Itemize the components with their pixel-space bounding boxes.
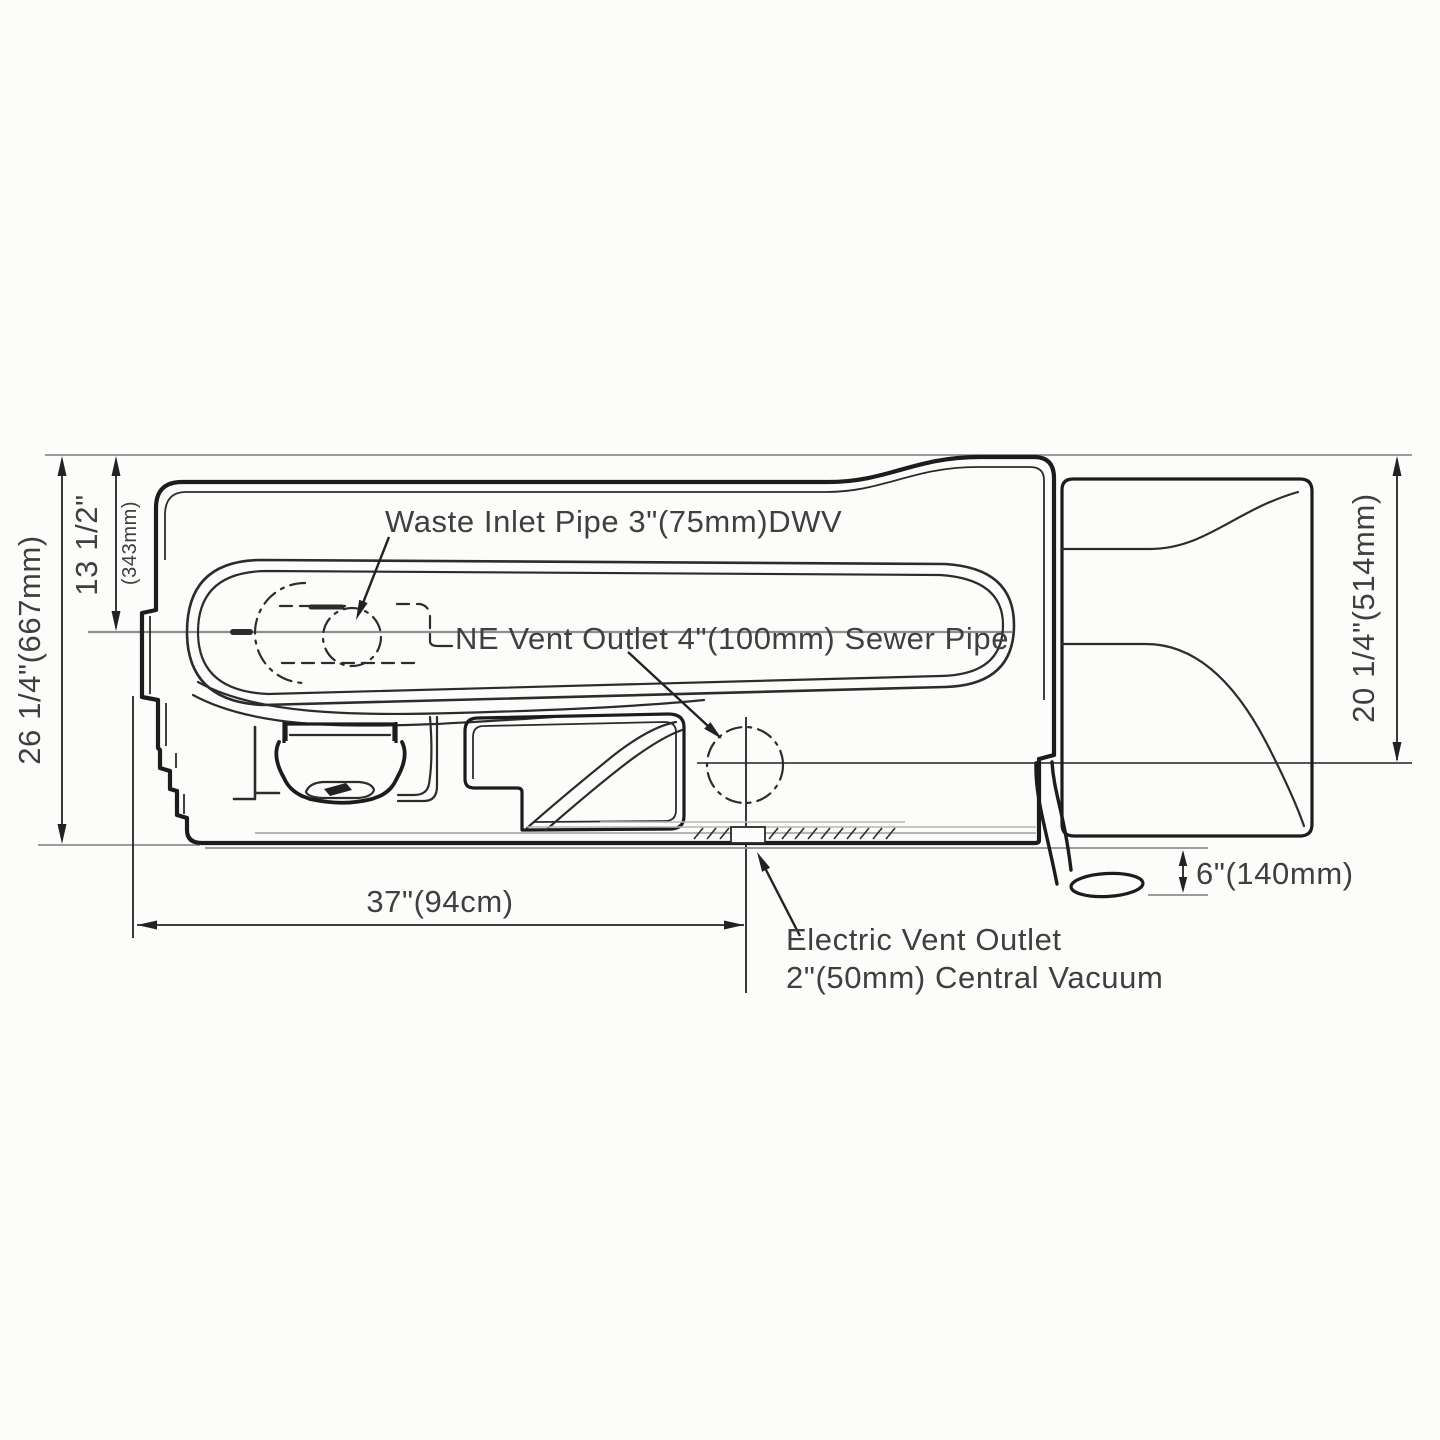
vent-bracket-foot bbox=[430, 634, 452, 646]
width-dimension-label: 37"(94cm) bbox=[366, 884, 513, 919]
electric-vent-label-line2: 2"(50mm) Central Vacuum bbox=[786, 960, 1163, 995]
dimension-hose-drop bbox=[1179, 850, 1187, 893]
waste-inlet-circle bbox=[323, 608, 381, 666]
sump-ramp-1 bbox=[527, 722, 676, 828]
diagram-canvas: Waste Inlet Pipe 3"(75mm)DWV NE Vent Out… bbox=[0, 0, 1440, 1440]
discharge-height-dimension-label: 20 1/4"(514mm) bbox=[1346, 493, 1381, 723]
hose-foot bbox=[1070, 872, 1143, 899]
flush-fixture bbox=[234, 717, 437, 803]
vacuum-box-outline bbox=[1062, 479, 1312, 836]
technical-diagram: Waste Inlet Pipe 3"(75mm)DWV NE Vent Out… bbox=[0, 0, 1440, 1440]
overall-height-dimension-label: 26 1/4"(667mm) bbox=[12, 535, 47, 765]
inlet-height-mm-label: (343mm) bbox=[119, 501, 141, 585]
fixture-bowl bbox=[276, 742, 404, 803]
tank-left-inner-steps bbox=[150, 616, 184, 814]
hose-drop-dimension-label: 6"(140mm) bbox=[1196, 856, 1354, 891]
inlet-height-in-label: 13 1/2" bbox=[69, 494, 104, 595]
waste-inlet-label: Waste Inlet Pipe 3"(75mm)DWV bbox=[385, 504, 842, 539]
leader-waste-inlet bbox=[356, 537, 389, 620]
vent-bracket-dashes bbox=[397, 604, 430, 634]
fixture-slot-fill bbox=[324, 783, 352, 796]
ne-vent-circle bbox=[707, 727, 783, 803]
bottom-band bbox=[255, 822, 1036, 843]
floor-contour-1 bbox=[198, 682, 704, 714]
sump-compartment bbox=[465, 714, 684, 830]
ne-vent-label: NE Vent Outlet 4"(100mm) Sewer Pipe bbox=[455, 621, 1009, 656]
vacuum-compartment bbox=[1062, 479, 1312, 836]
vacuum-funnel-upper bbox=[1062, 492, 1298, 549]
drain-hose bbox=[1036, 762, 1144, 898]
dimension-discharge-height bbox=[1393, 456, 1402, 762]
sump-ramp-2 bbox=[546, 730, 682, 830]
vacuum-funnel-lower bbox=[1062, 644, 1304, 826]
fixture-left-support bbox=[234, 727, 279, 799]
electric-vent-marker bbox=[731, 827, 765, 843]
dimension-overall-height bbox=[58, 456, 67, 844]
electric-vent-label-line1: Electric Vent Outlet bbox=[786, 922, 1062, 957]
sump-inner-contour bbox=[473, 722, 676, 822]
dimension-width bbox=[137, 921, 744, 930]
